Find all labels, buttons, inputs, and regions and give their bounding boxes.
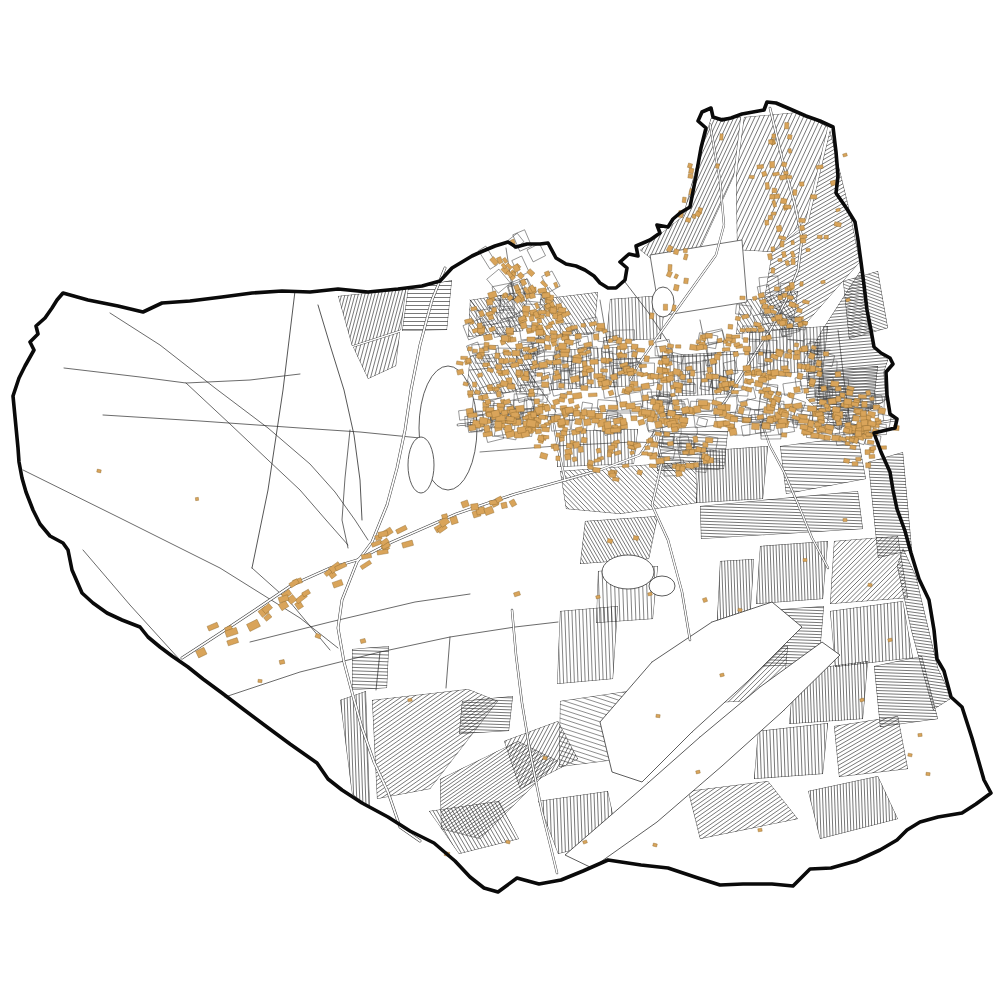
map-canvas bbox=[0, 0, 1000, 1000]
cadastral-map bbox=[0, 0, 1000, 1000]
